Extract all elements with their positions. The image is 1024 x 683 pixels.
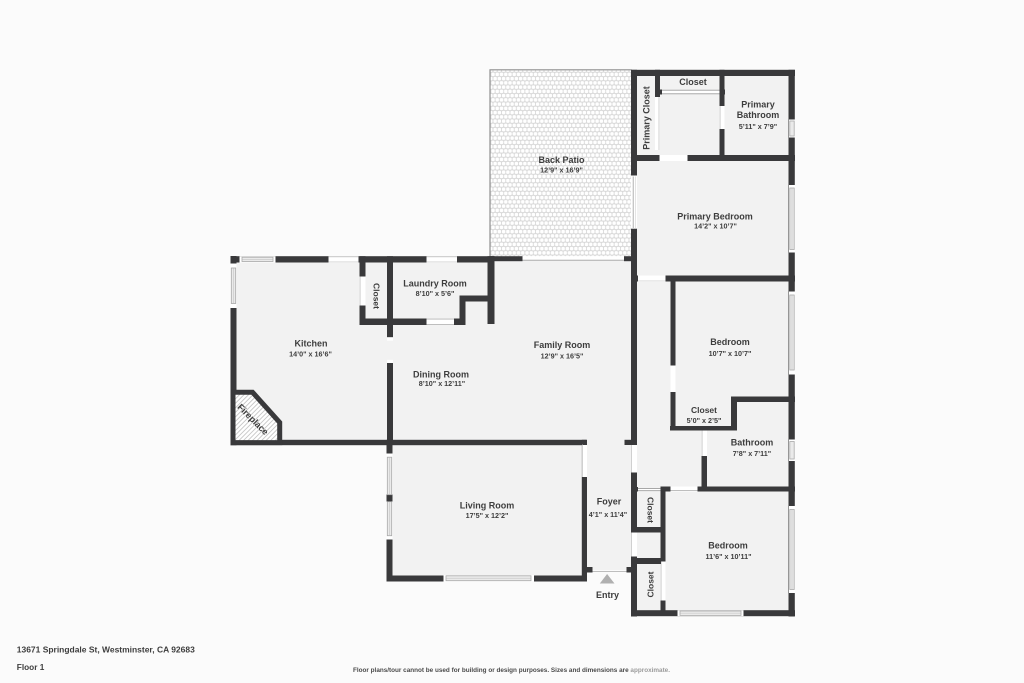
svg-text:Closet: Closet [679, 77, 707, 87]
svg-text:5’0" x 2’5": 5’0" x 2’5" [687, 416, 722, 425]
svg-text:Closet: Closet [646, 497, 656, 523]
svg-text:Primary Closet: Primary Closet [642, 86, 652, 150]
svg-text:Closet: Closet [646, 571, 656, 597]
svg-text:10’7" x 10’7": 10’7" x 10’7" [709, 349, 752, 358]
svg-text:4’1" x 11’4": 4’1" x 11’4" [589, 510, 627, 519]
svg-text:Entry: Entry [596, 590, 619, 600]
svg-text:12’9" x 16’9": 12’9" x 16’9" [540, 165, 583, 174]
svg-text:Living Room: Living Room [460, 501, 515, 511]
svg-text:Closet: Closet [371, 283, 381, 309]
svg-text:Bathroom: Bathroom [737, 110, 780, 120]
svg-text:Foyer: Foyer [597, 497, 622, 507]
svg-text:13671 Springdale St, Westminst: 13671 Springdale St, Westminster, CA 926… [17, 645, 195, 655]
svg-text:Floor 1: Floor 1 [17, 662, 45, 672]
svg-text:Bedroom: Bedroom [708, 541, 748, 551]
svg-text:8’10" x 12’11": 8’10" x 12’11" [419, 379, 465, 388]
svg-text:14’0" x 16’6": 14’0" x 16’6" [289, 349, 332, 358]
svg-text:Kitchen: Kitchen [294, 339, 327, 349]
svg-text:5’11" x 7’9": 5’11" x 7’9" [739, 122, 777, 131]
svg-text:Laundry Room: Laundry Room [403, 279, 467, 289]
svg-text:14’2" x 10’7": 14’2" x 10’7" [694, 221, 737, 230]
svg-text:Back Patio: Back Patio [538, 155, 585, 165]
svg-text:17’5" x 12’2": 17’5" x 12’2" [466, 511, 509, 520]
svg-text:Family Room: Family Room [534, 340, 591, 350]
svg-text:Bedroom: Bedroom [710, 337, 750, 347]
svg-text:Floor plans/tour cannot be use: Floor plans/tour cannot be used for buil… [353, 667, 670, 674]
svg-text:Closet: Closet [691, 405, 717, 415]
svg-text:Primary Bedroom: Primary Bedroom [677, 212, 753, 222]
svg-text:11’6" x 10’11": 11’6" x 10’11" [706, 552, 752, 561]
svg-text:7’8" x 7’11": 7’8" x 7’11" [733, 449, 771, 458]
svg-text:Bathroom: Bathroom [731, 438, 774, 448]
svg-text:Primary: Primary [741, 100, 775, 110]
svg-text:12’9" x 16’5": 12’9" x 16’5" [541, 351, 584, 360]
svg-text:8’10" x 5’6": 8’10" x 5’6" [416, 289, 455, 298]
